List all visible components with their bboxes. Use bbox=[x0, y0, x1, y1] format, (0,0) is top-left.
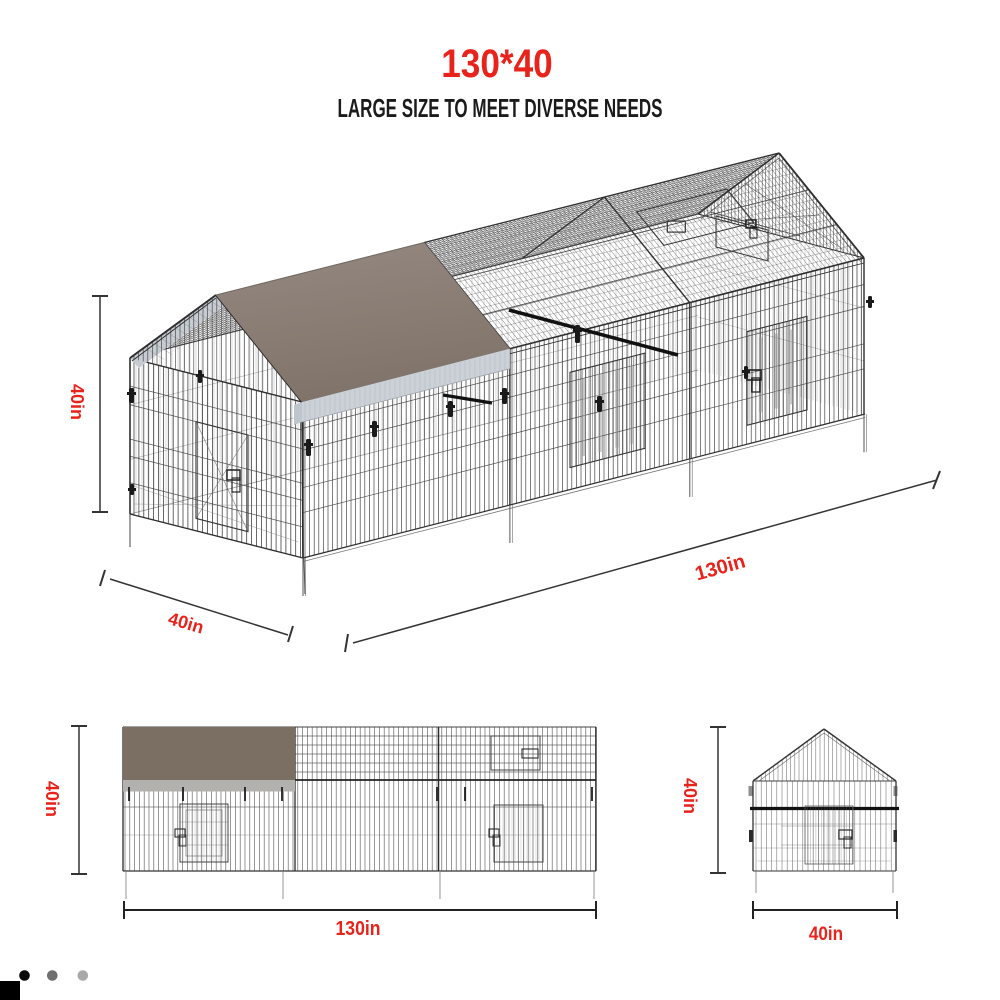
svg-text:40in: 40in bbox=[680, 778, 700, 814]
svg-text:130*40: 130*40 bbox=[441, 41, 553, 86]
svg-text:130in: 130in bbox=[336, 917, 381, 939]
svg-text:40in: 40in bbox=[42, 781, 62, 817]
svg-text:40in: 40in bbox=[67, 384, 87, 420]
svg-text:40in: 40in bbox=[809, 923, 843, 944]
svg-text:LARGE SIZE TO MEET DIVERSE NEE: LARGE SIZE TO MEET DIVERSE NEEDS bbox=[337, 93, 662, 123]
